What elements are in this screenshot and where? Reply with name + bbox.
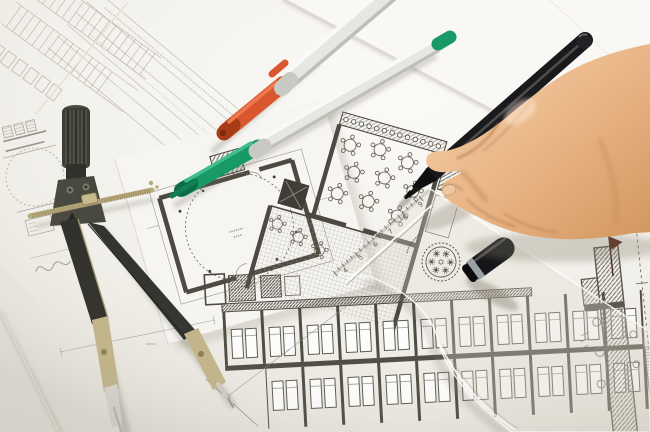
photo-architect-workspace: 4 5 6 7 8 9 — [0, 0, 650, 432]
vignette-overlay — [0, 0, 650, 432]
scene: 4 5 6 7 8 9 — [0, 0, 650, 432]
